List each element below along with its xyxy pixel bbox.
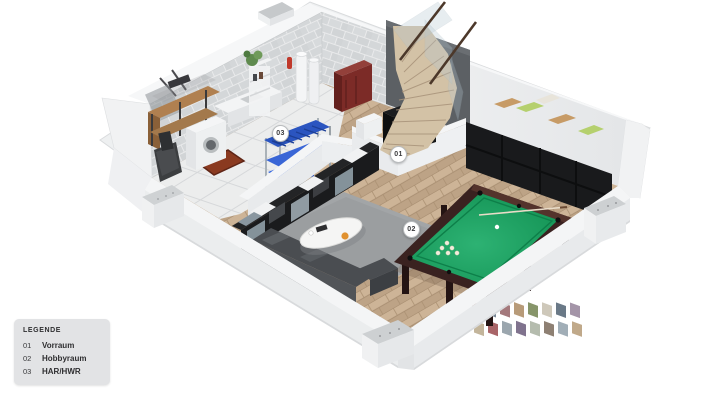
legend-item-label: HAR/HWR <box>42 367 81 376</box>
legend-item-label: Hobbyraum <box>42 354 86 363</box>
legend-item-label: Vorraum <box>42 341 74 350</box>
legend-item-har-hwr: 03 HAR/HWR <box>23 367 101 376</box>
room-marker-01-label: 01 <box>394 151 402 158</box>
legend-item-hobbyraum: 02 Hobbyraum <box>23 354 101 363</box>
legend-card: LEGENDE 01 Vorraum 02 Hobbyraum 03 HAR/H… <box>14 319 110 385</box>
legend-item-number: 03 <box>23 367 35 376</box>
legend-title: LEGENDE <box>23 327 101 334</box>
legend-item-number: 01 <box>23 341 35 350</box>
room-marker-01: 01 <box>390 146 407 163</box>
ladder-shelf <box>248 58 272 116</box>
legend-item-number: 02 <box>23 354 35 363</box>
room-marker-02-label: 02 <box>407 226 415 233</box>
floorplan-canvas: 01 02 03 LEGENDE 01 Vorraum 02 Hobbyraum… <box>0 0 712 400</box>
legend-item-vorraum: 01 Vorraum <box>23 341 101 350</box>
room-marker-03-label: 03 <box>276 130 284 137</box>
room-marker-03: 03 <box>272 125 289 142</box>
fire-extinguisher-icon <box>287 57 292 69</box>
room-marker-02: 02 <box>403 221 420 238</box>
